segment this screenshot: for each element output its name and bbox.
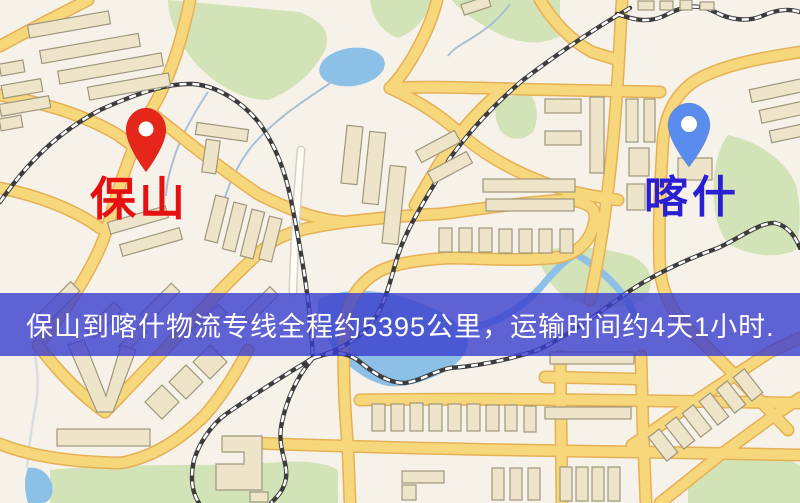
route-info-banner: 保山到喀什物流专线全程约5395公里，运输时间约4天1小时. (0, 293, 800, 356)
baoshan-label: 保山 (90, 177, 188, 223)
route-info-text: 保山到喀什物流专线全程约5395公里，运输时间约4天1小时. (0, 305, 775, 344)
map[interactable]: 保山 喀什 保山到喀什物流专线全程约5395公里，运输时间约4天1小时. (0, 0, 800, 503)
kashgar-label: 喀什 (644, 176, 740, 220)
kashgar-pin-icon[interactable] (668, 103, 710, 167)
map-image (0, 0, 800, 503)
